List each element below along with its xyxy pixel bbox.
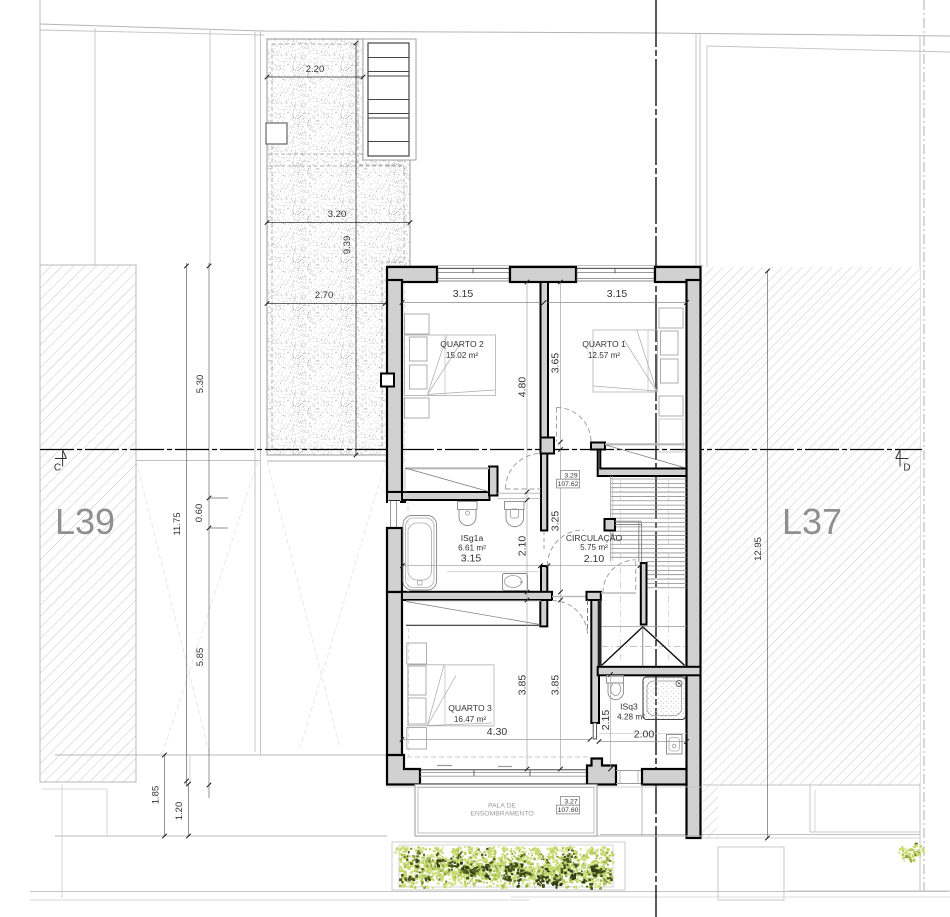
svg-text:9.39: 9.39	[342, 236, 353, 255]
svg-text:ISg1a: ISg1a	[461, 533, 484, 543]
svg-text:3.65: 3.65	[550, 353, 562, 374]
svg-text:16.47 m²: 16.47 m²	[454, 715, 487, 724]
svg-text:ISq3: ISq3	[620, 702, 638, 712]
svg-text:L39: L39	[55, 501, 115, 542]
svg-text:107.62: 107.62	[558, 481, 579, 488]
svg-text:3.25: 3.25	[550, 511, 562, 532]
svg-text:5.75 m²: 5.75 m²	[580, 543, 608, 552]
svg-text:12.57 m²: 12.57 m²	[588, 351, 621, 360]
svg-text:L37: L37	[782, 501, 842, 542]
svg-text:C: C	[54, 463, 61, 474]
svg-text:1.20: 1.20	[174, 802, 185, 821]
svg-text:107.60: 107.60	[558, 807, 579, 814]
svg-text:3.85: 3.85	[517, 675, 529, 696]
svg-text:4.80: 4.80	[517, 377, 529, 398]
svg-text:2.15: 2.15	[600, 710, 612, 731]
svg-text:12.95: 12.95	[753, 537, 764, 561]
svg-text:4.28 m²: 4.28 m²	[617, 713, 645, 722]
svg-text:QUARTO 1: QUARTO 1	[582, 339, 626, 349]
svg-text:3.15: 3.15	[461, 553, 482, 565]
svg-text:5.85: 5.85	[195, 648, 206, 667]
svg-text:1.85: 1.85	[151, 786, 162, 805]
svg-text:3.15: 3.15	[453, 288, 474, 300]
svg-text:ENSOMBRAMENTO: ENSOMBRAMENTO	[470, 811, 533, 818]
svg-text:QUARTO 2: QUARTO 2	[440, 339, 484, 349]
svg-text:CIRCULAÇÃO: CIRCULAÇÃO	[566, 533, 623, 543]
svg-text:D: D	[903, 463, 910, 474]
svg-text:2.00: 2.00	[634, 729, 655, 741]
svg-text:11.75: 11.75	[172, 512, 183, 535]
svg-text:3.29: 3.29	[564, 472, 577, 479]
svg-text:3.15: 3.15	[607, 288, 628, 300]
svg-text:2.10: 2.10	[584, 553, 605, 565]
svg-text:2.70: 2.70	[315, 290, 334, 301]
svg-text:3.20: 3.20	[328, 209, 347, 220]
svg-text:5.30: 5.30	[195, 375, 206, 394]
svg-text:2.20: 2.20	[306, 64, 325, 75]
svg-text:4.30: 4.30	[487, 726, 508, 738]
svg-text:PALA DE: PALA DE	[488, 803, 516, 810]
svg-text:6.61 m²: 6.61 m²	[458, 544, 486, 553]
svg-text:QUARTO 3: QUARTO 3	[448, 703, 492, 713]
svg-text:0.60: 0.60	[194, 504, 205, 523]
svg-text:15.02 m²: 15.02 m²	[446, 351, 479, 360]
svg-text:3.85: 3.85	[550, 675, 562, 696]
svg-text:2.10: 2.10	[517, 536, 529, 557]
svg-text:3.27: 3.27	[564, 798, 577, 805]
